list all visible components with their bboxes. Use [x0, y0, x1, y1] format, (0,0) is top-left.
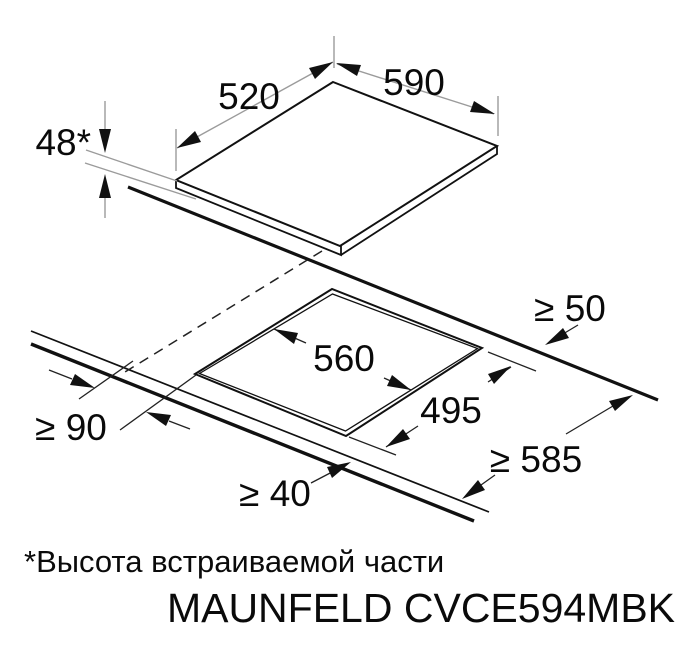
- side-clearance-leader-a: [49, 370, 72, 379]
- dim-front-clearance: ≥ 40: [239, 462, 351, 514]
- cutout-depth-label: 495: [420, 390, 482, 431]
- appliance-width-label: 590: [383, 62, 445, 103]
- side-clearance-leader-b: [169, 421, 190, 429]
- worktop-depth-leader-top: [566, 406, 613, 434]
- cutout-depth-arrow-downleft-icon: [386, 429, 410, 447]
- appliance-depth-label: 520: [218, 76, 280, 117]
- installation-diagram-page: 48* 520 590 560: [0, 0, 700, 670]
- height-arrow-up-icon: [99, 174, 111, 198]
- installation-diagram: 48* 520 590 560: [0, 0, 700, 670]
- side-clearance-arrow-b-icon: [146, 412, 171, 426]
- cutout-depth-extension-top: [488, 352, 536, 371]
- dim-worktop-depth: ≥ 585: [462, 395, 633, 499]
- worktop-depth-arrow-top-icon: [609, 395, 633, 411]
- width-arrow-right-icon: [470, 101, 495, 114]
- footnote: *Высота встраиваемой части: [24, 544, 444, 579]
- rear-clearance-arrow-icon: [545, 328, 569, 345]
- height-label: 48*: [35, 122, 91, 163]
- side-clearance-arrow-a-icon: [70, 374, 95, 388]
- dim-side-clearance: ≥ 90: [35, 361, 196, 448]
- side-clearance-label: ≥ 90: [35, 407, 107, 448]
- cutout-width-label: 560: [313, 338, 375, 379]
- height-extension-top: [86, 150, 177, 181]
- model-name: MAUNFELD CVCE594MBK: [167, 585, 675, 631]
- cutout-depth-arrow-upright-icon: [488, 366, 511, 384]
- worktop-depth-arrow-bottom-icon: [462, 480, 485, 499]
- depth-arrow-right-icon: [309, 62, 333, 79]
- width-arrow-left-icon: [336, 63, 361, 76]
- front-clearance-label: ≥ 40: [239, 473, 311, 514]
- dim-rear-clearance: ≥ 50: [534, 288, 606, 345]
- height-arrow-down-icon: [99, 129, 111, 153]
- dim-builtin-height: 48*: [35, 101, 196, 218]
- depth-arrow-left-icon: [177, 131, 201, 148]
- rear-clearance-label: ≥ 50: [534, 288, 606, 329]
- worktop-depth-label: ≥ 585: [490, 439, 582, 480]
